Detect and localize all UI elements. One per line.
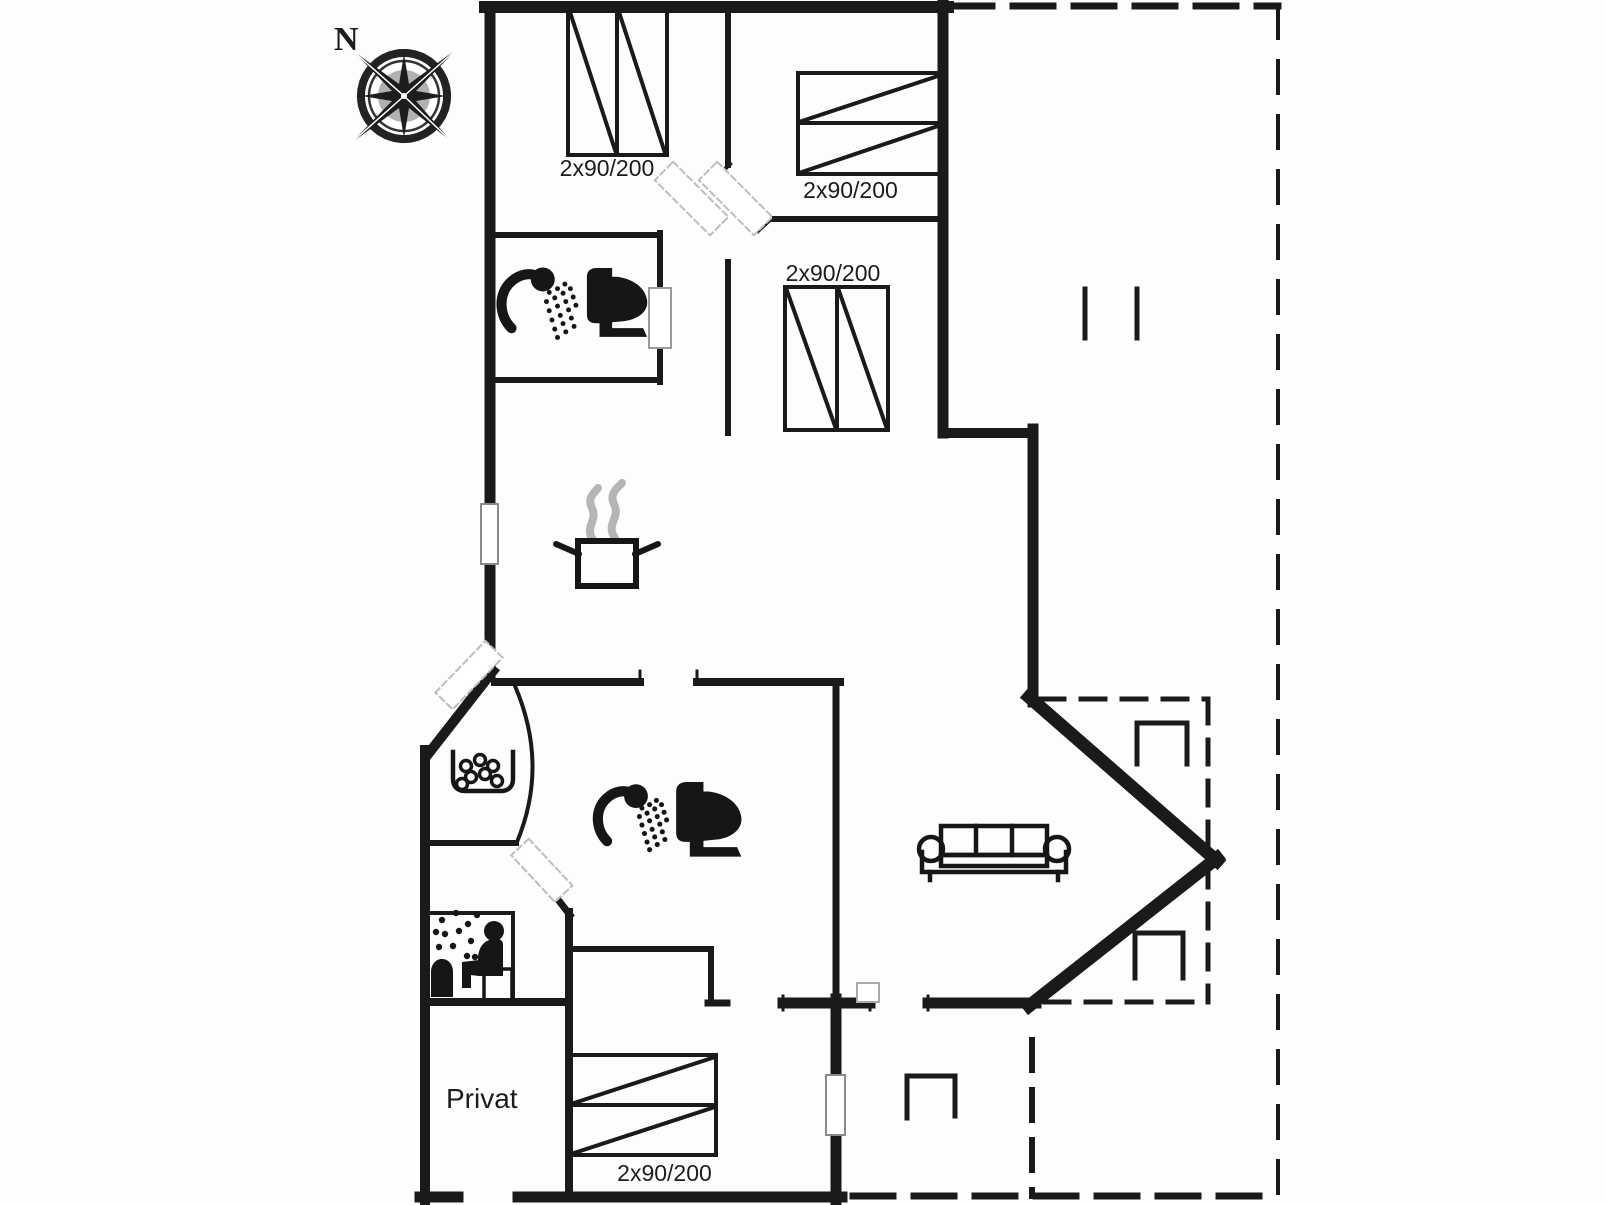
terrace-chair-2 [1135, 933, 1183, 978]
floor-plan-page: N 2x90/200 2x90/200 2x90/200 2x90/200 Pr… [0, 0, 1606, 1205]
terrace-chair-1 [1137, 723, 1187, 764]
sauna-heater [431, 959, 453, 997]
bed-label-top-right: 2x90/200 [788, 177, 913, 203]
bathroom-door-leaf [649, 288, 671, 348]
bed-middle [785, 287, 888, 430]
private-room-label: Privat [446, 1083, 518, 1115]
bed-top-right [798, 73, 942, 174]
bed-label-top-left: 2x90/200 [542, 155, 672, 181]
compass-rose-icon [350, 48, 458, 144]
curved-partition [515, 686, 533, 842]
window-left [481, 504, 498, 564]
terrace-door-leaf [857, 983, 879, 1002]
bathroom-top-shower-icon [502, 268, 579, 340]
utility-door-leaf [511, 839, 572, 902]
washbasin-icon [453, 752, 513, 791]
bed-top-left [568, 8, 667, 155]
terrace-chair-3 [907, 1076, 955, 1118]
terrace-bench-icon [1085, 289, 1137, 338]
cooking-pot-icon [556, 541, 658, 586]
sauna-icon [431, 910, 512, 1000]
steam-icon [590, 483, 622, 540]
bathroom-main-toilet-icon [676, 782, 741, 857]
bathroom-top-toilet-icon [587, 268, 647, 337]
sofa-icon [919, 826, 1069, 880]
bed-bottom [570, 1055, 716, 1155]
compass-north-label: N [334, 20, 359, 59]
bathroom-main-shower-icon [598, 784, 669, 852]
terrace-boundary-dashed [853, 6, 1278, 1196]
window-bottom-right [826, 1075, 845, 1135]
sauna-steam-dots [433, 910, 480, 960]
bed-label-bottom: 2x90/200 [602, 1160, 727, 1186]
bed-label-middle: 2x90/200 [772, 260, 894, 286]
